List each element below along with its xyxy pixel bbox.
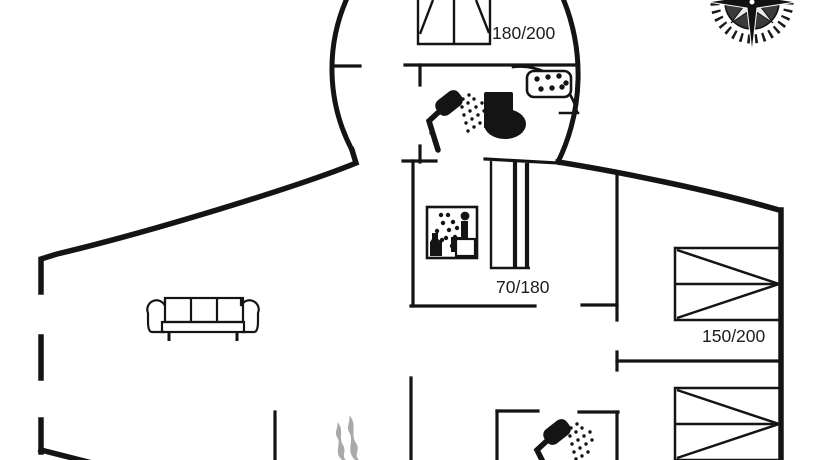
tower-wall-left [332,0,352,150]
double-bed-icon [675,388,781,460]
shower-spray-dots [568,422,593,460]
left-wing-wall [41,150,356,292]
fireplace-flames-icon [336,415,359,460]
junior-bed-icon [491,161,530,268]
sauna-bench [456,239,475,256]
sauna-icon [427,207,477,258]
bed-duvet-fold [420,0,433,34]
compass-rose-icon [708,0,796,52]
floor-plan-drawing: 180/200 70/180 150/200 [0,0,834,460]
left-wall-corner [41,450,96,460]
sofa-feet [169,332,237,341]
floor-plan: 180/200 70/180 150/200 [0,0,834,460]
sofa-rail [162,322,244,332]
bed-duvet-fold [476,0,489,33]
toilet-icon [484,92,526,139]
label-tower-bed: 180/200 [492,23,556,43]
label-junior-bed: 70/180 [496,277,550,297]
sofa-icon [147,298,258,341]
label-right-bed: 150/200 [702,326,766,346]
sink-icon [527,71,571,97]
shower-icon [537,416,594,460]
bathroom-south-wall [485,159,558,163]
right-wing-wall [558,162,781,460]
double-bed-icon [418,0,490,44]
shower-icon [429,87,488,150]
double-bed-icon [675,248,781,320]
sofa-cushions [165,298,243,322]
